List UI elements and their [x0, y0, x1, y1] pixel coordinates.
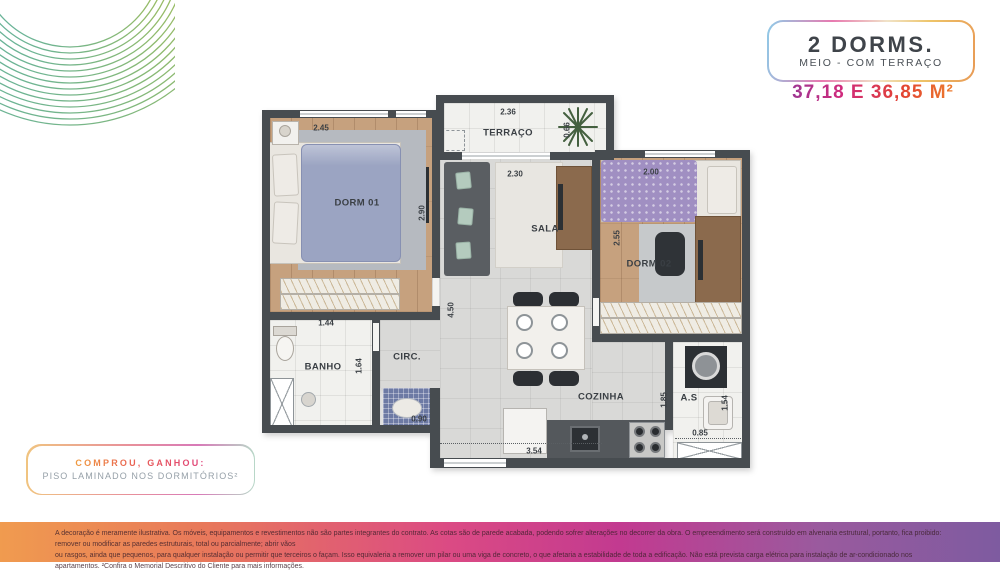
- banho-label: BANHO: [305, 362, 342, 373]
- cota-social-h: 4.50: [447, 302, 456, 318]
- wall-left: [262, 110, 270, 433]
- cota-terraco-w: 2.36: [500, 108, 516, 117]
- circ-label: CIRC.: [393, 352, 421, 363]
- unit-type-title: 2 DORMS.: [808, 33, 934, 56]
- cota-cozinha-w: 3.54: [526, 447, 542, 456]
- cota-banho-w: 1.44: [318, 319, 334, 328]
- footer-disclaimer-text: A decoração é meramente ilustrativa. Os …: [0, 522, 1000, 572]
- footer-disclaimer-bar: A decoração é meramente ilustrativa. Os …: [0, 522, 1000, 562]
- terraco-sliding-door: [462, 153, 552, 159]
- dorm01-pillow: [272, 201, 299, 244]
- cota-dorm01-h: 2.90: [418, 205, 427, 221]
- banho-door: [373, 323, 379, 351]
- terraco-ac-outline: [441, 130, 465, 151]
- dorm02-door: [593, 298, 599, 326]
- sala-rug: [495, 162, 563, 268]
- toilet-tank: [273, 326, 297, 336]
- cota-dorm01-w: 2.45: [313, 124, 329, 133]
- cota-dorm02-h: 2.55: [613, 230, 622, 246]
- entry-door: [444, 459, 506, 467]
- kitchen-faucet: [582, 434, 588, 440]
- toilet-bowl: [276, 336, 294, 361]
- cozinha-measure-line: [440, 443, 602, 444]
- sala-tv: [558, 184, 563, 230]
- floor-plan: DORM 01 TERRAÇO SALA DORM 02 BANHO CIRC.…: [255, 90, 755, 480]
- wall-as-partition: [665, 342, 673, 430]
- sala-label: SALA: [531, 224, 558, 235]
- dorm01-lamp: [279, 125, 291, 137]
- promo-line2: PISO LAMINADO NOS DORMITÓRIOS²: [42, 471, 238, 481]
- dining-plate: [516, 314, 533, 331]
- stove-burner: [650, 426, 661, 437]
- cota-dorm02-w: 2.00: [643, 168, 659, 177]
- dorm02-wardrobe: [600, 302, 742, 334]
- dining-plate: [551, 314, 568, 331]
- dorm01-label: DORM 01: [334, 198, 379, 209]
- decorative-arcs: [0, 0, 175, 140]
- disclaimer-line2: ou rasgos, ainda que pequenos, para qual…: [55, 551, 945, 572]
- cota-terraco-h: 0.66: [563, 122, 572, 138]
- dining-chair: [513, 371, 543, 386]
- as-label: A.S: [680, 393, 697, 404]
- cota-sala-w: 2.30: [507, 170, 523, 179]
- terraco-label: TERRAÇO: [483, 128, 533, 139]
- dorm01-wardrobe: [280, 278, 400, 310]
- wall-terraco-top: [436, 95, 614, 103]
- sofa-pillow: [455, 241, 471, 259]
- cozinha-label: COZINHA: [578, 392, 624, 403]
- washing-machine-drum: [692, 352, 720, 380]
- unit-type-subtitle: MEIO - COM TERRAÇO: [799, 57, 943, 69]
- dining-plate: [551, 342, 568, 359]
- cota-banho-h: 1.64: [355, 358, 364, 374]
- shower-box: [270, 378, 294, 430]
- dorm01-pillow: [272, 153, 299, 196]
- promo-line1: COMPROU, GANHOU:: [75, 458, 205, 468]
- stove-burner: [650, 442, 661, 453]
- dining-plate: [516, 342, 533, 359]
- dorm02-window: [645, 151, 715, 157]
- wall-dorm01-right: [432, 110, 440, 278]
- sofa-pillow: [457, 207, 473, 225]
- dining-chair: [549, 371, 579, 386]
- stove-burner: [634, 426, 645, 437]
- dorm02-pillow: [707, 166, 737, 214]
- unit-type-badge: 2 DORMS. MEIO - COM TERRAÇO: [767, 20, 975, 82]
- banho-sink: [301, 392, 316, 407]
- dining-chair: [549, 292, 579, 307]
- wall-lavatorio-right: [430, 388, 440, 468]
- cota-as-h-left: 1.85: [660, 392, 669, 408]
- unit-area-text: 37,18 E 36,85 M²: [771, 82, 975, 104]
- cota-as-w: 0.85: [692, 429, 708, 438]
- dorm02-monitor: [698, 240, 703, 280]
- dorm02-label: DORM 02: [626, 259, 671, 270]
- disclaimer-line1: A decoração é meramente ilustrativa. Os …: [55, 529, 945, 551]
- unit-type-badge-inner: 2 DORMS. MEIO - COM TERRAÇO: [769, 22, 973, 80]
- promo-badge: COMPROU, GANHOU: PISO LAMINADO NOS DORMI…: [26, 444, 255, 495]
- dorm01-window: [396, 111, 426, 117]
- wall-right: [742, 150, 750, 468]
- dorm01-window: [300, 111, 388, 117]
- dorm01-door: [433, 278, 439, 306]
- promo-badge-inner: COMPROU, GANHOU: PISO LAMINADO NOS DORMI…: [28, 446, 254, 494]
- cota-lavatorio-w: 0.90: [411, 415, 427, 424]
- dining-chair: [513, 292, 543, 307]
- stove-burner: [634, 442, 645, 453]
- wall-banho-bottom: [262, 425, 440, 433]
- sofa-pillow: [455, 171, 472, 189]
- wall-dorm02-bottom: [592, 334, 750, 342]
- wall-dorm01-bottom: [262, 312, 440, 320]
- as-measure-line: [675, 438, 741, 439]
- cota-as-h-right: 1.54: [721, 395, 730, 411]
